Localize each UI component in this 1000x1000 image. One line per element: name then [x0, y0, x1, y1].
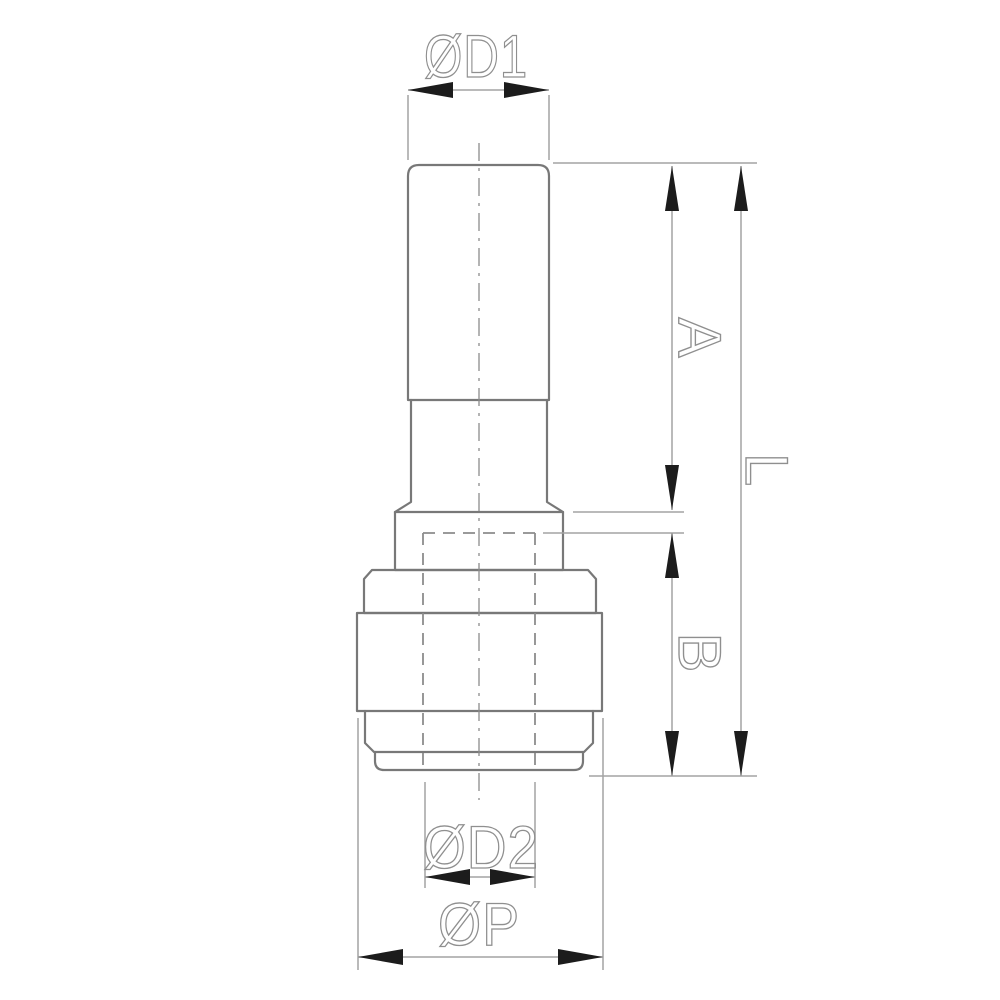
a-label: A — [666, 317, 733, 358]
right-extension-lines — [543, 163, 757, 776]
technical-drawing: ØD1 A B L ØD2 Ø — [0, 0, 1000, 1000]
d2-label: ØD2 — [423, 814, 539, 881]
b-bottom-arrowhead — [665, 731, 679, 776]
p-right-arrowhead — [558, 949, 603, 965]
l-bottom-arrowhead — [734, 731, 748, 776]
p-left-arrowhead — [358, 949, 403, 965]
a-bottom-arrowhead — [665, 465, 679, 510]
main-body — [357, 613, 602, 711]
dim-l: L — [733, 166, 800, 776]
dim-d1: ØD1 — [408, 23, 549, 160]
l-label: L — [733, 453, 800, 487]
p-label: ØP — [438, 891, 520, 958]
stem-lower-section — [395, 400, 411, 512]
d1-label: ØD1 — [424, 23, 528, 90]
b-label: B — [666, 632, 733, 673]
dim-a: A — [665, 166, 733, 510]
dim-d2: ØD2 — [423, 782, 539, 888]
b-top-arrowhead — [665, 533, 679, 578]
drawing-canvas: ØD1 A B L ØD2 Ø — [0, 0, 1000, 1000]
dim-b: B — [665, 533, 733, 776]
l-top-arrowhead — [734, 166, 748, 211]
stem-lower-section-right — [547, 400, 563, 512]
collet-cap — [364, 570, 596, 613]
a-top-arrowhead — [665, 166, 679, 211]
